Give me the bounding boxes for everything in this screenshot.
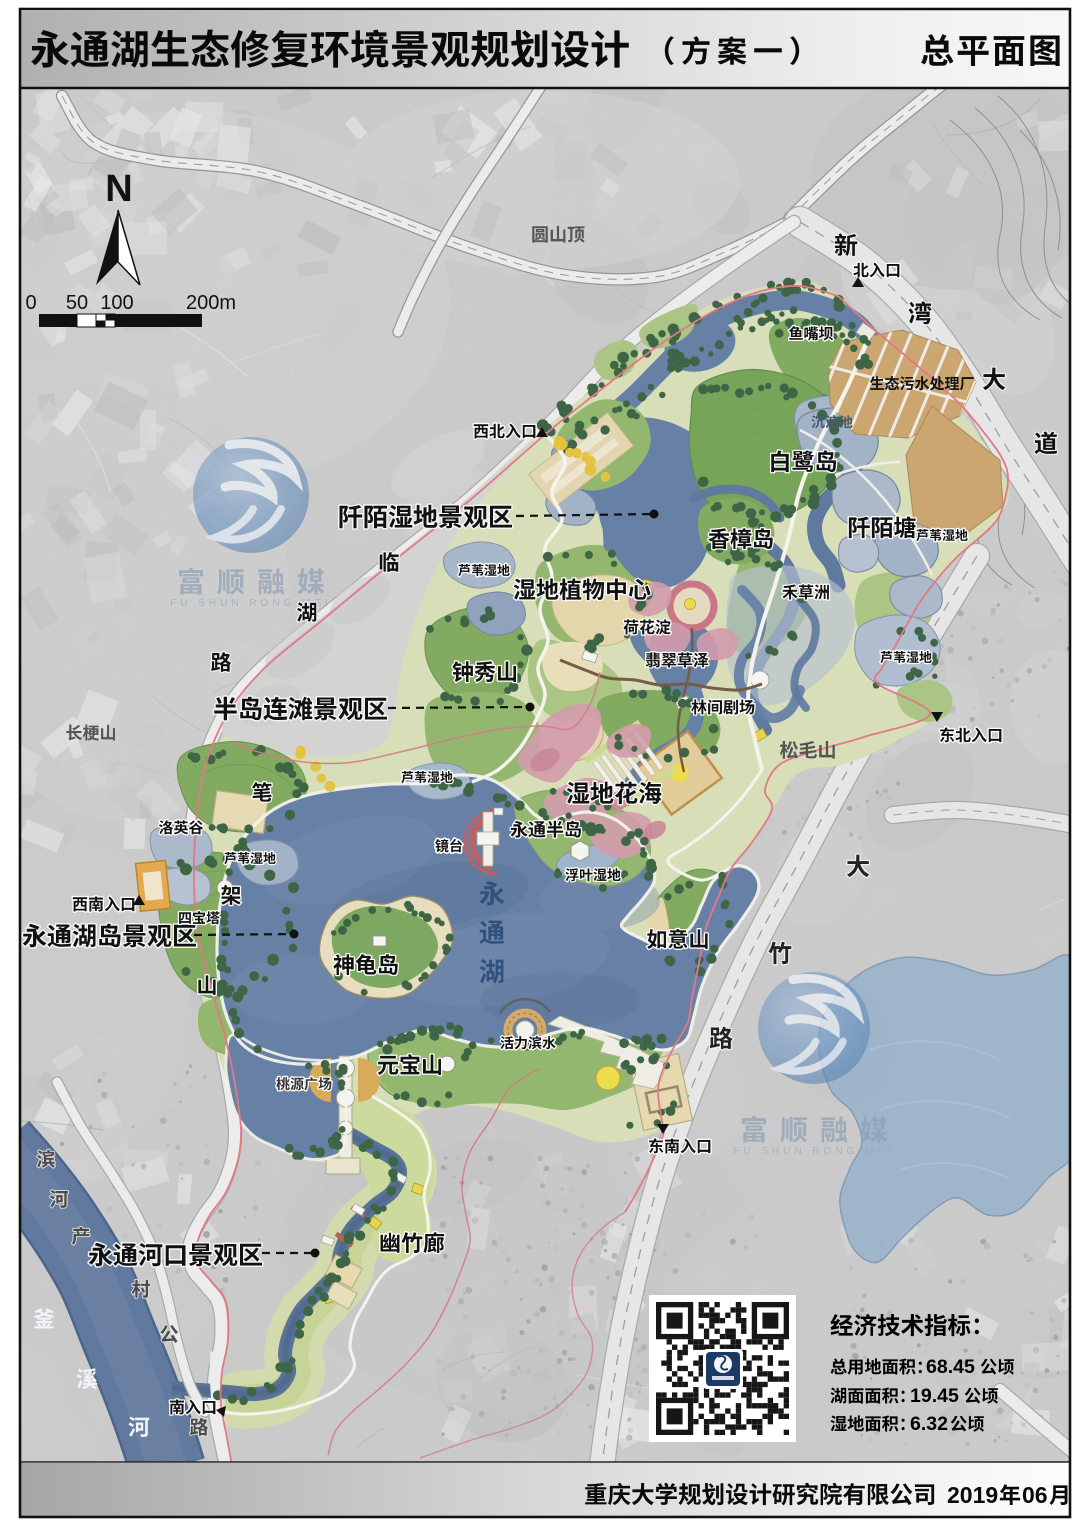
svg-text:2019: 2019 xyxy=(947,1482,998,1508)
svg-text:68.45: 68.45 xyxy=(926,1356,975,1378)
svg-text:06: 06 xyxy=(1022,1482,1048,1508)
svg-text:100: 100 xyxy=(100,292,133,314)
svg-text:0: 0 xyxy=(25,292,36,314)
svg-text:19.45: 19.45 xyxy=(910,1385,959,1407)
svg-text:N: N xyxy=(105,168,132,210)
svg-text:FU SHUN RONG MEI: FU SHUN RONG MEI xyxy=(733,1146,895,1157)
svg-text:6.32: 6.32 xyxy=(910,1413,948,1435)
svg-text:50: 50 xyxy=(66,292,88,314)
svg-text:200m: 200m xyxy=(186,292,236,314)
